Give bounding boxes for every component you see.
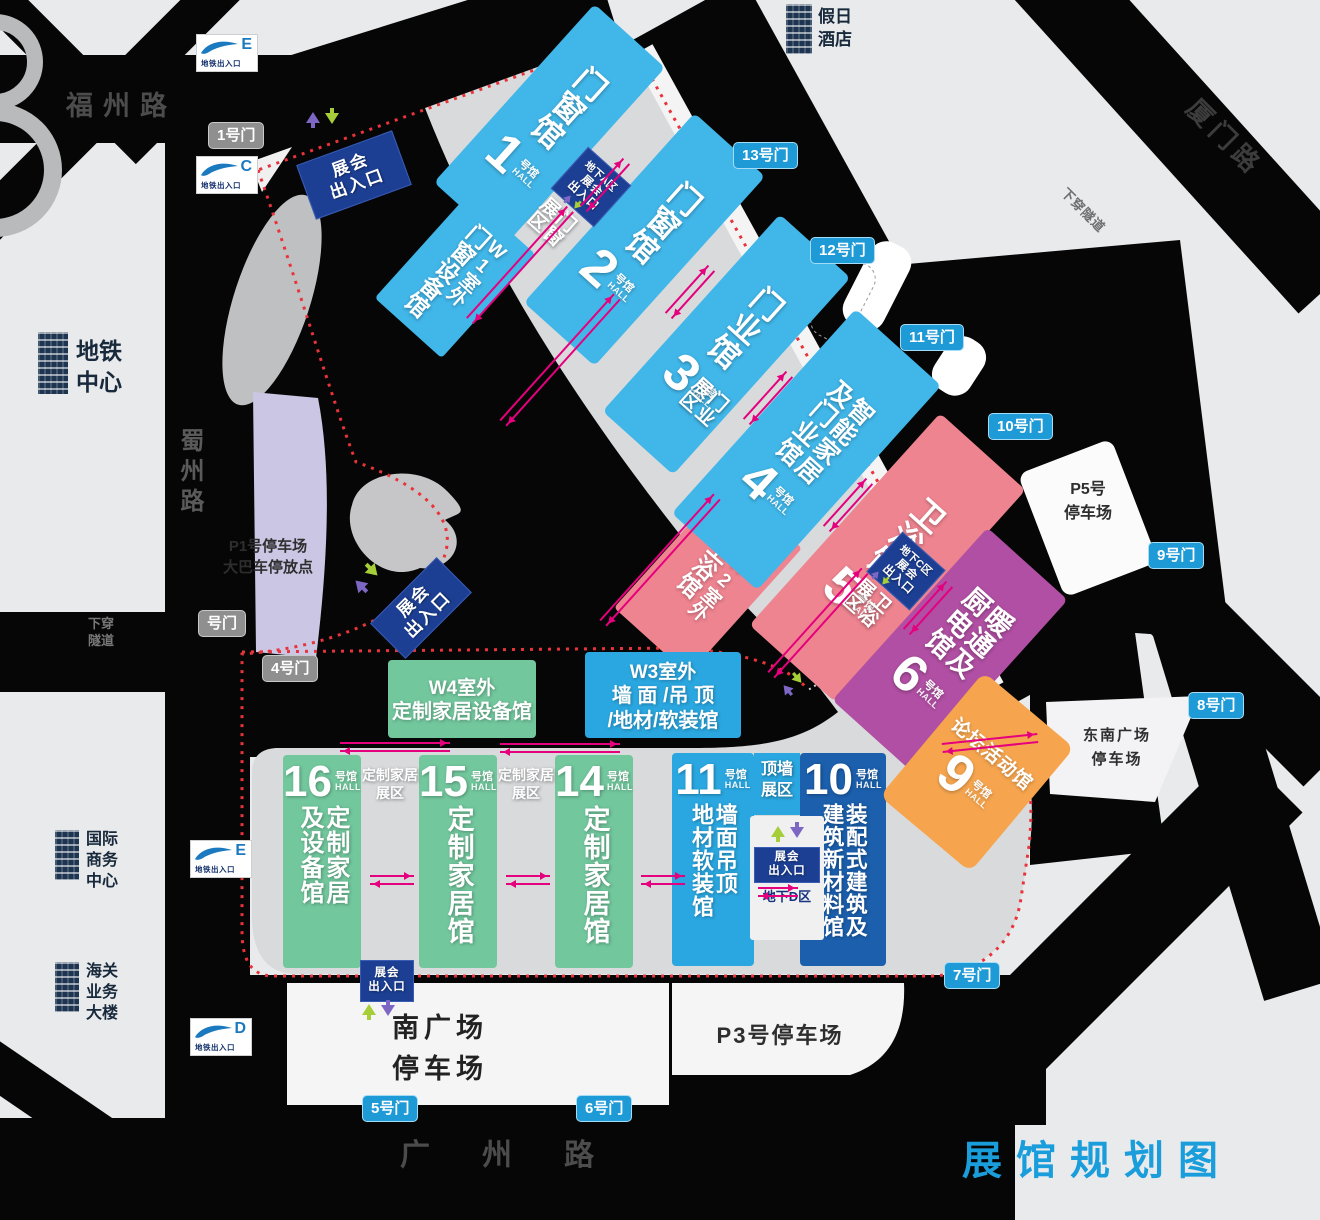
- metro-logo-icon: [200, 38, 240, 56]
- customs-building-icon: [55, 962, 79, 1012]
- gate-13[interactable]: 13号门: [733, 142, 798, 169]
- entrance-arrows: [771, 820, 804, 844]
- p5-parking-label: P5号停车场: [1052, 478, 1124, 526]
- outdoor-hall-w3-line2: /地材/软装馆: [607, 709, 718, 734]
- outdoor-hall-w4-name: 定制家居设备馆: [392, 700, 532, 725]
- metro-exit-c[interactable]: C 地铁出入口: [196, 156, 258, 194]
- map-title: 展馆规划图: [962, 1128, 1232, 1186]
- outdoor-hall-w3-tag: W3室外: [630, 657, 697, 684]
- tunnel-label-west: 下穿隧道: [88, 616, 118, 650]
- outdoor-hall-w4-tag: W4室外: [429, 673, 496, 700]
- gate-6[interactable]: 6号门: [576, 1095, 632, 1122]
- gate-7[interactable]: 7号门: [944, 962, 1000, 989]
- hotel-label: 假日酒店: [818, 6, 858, 52]
- p1-parking-label: P1号停车场大巴车停放点: [218, 536, 318, 578]
- metro-logo-icon: [200, 160, 240, 178]
- north-entrance-arrows: [306, 106, 339, 130]
- p3-parking-label: P3号停车场: [700, 1018, 860, 1050]
- road-shuzhou: 蜀州路: [172, 428, 207, 518]
- metro-center-building-icon: [38, 332, 68, 394]
- down-arrow-icon: [790, 820, 804, 844]
- outdoor-hall-w3[interactable]: W3室外 墙 面 /吊 顶 /地材/软装馆: [585, 652, 741, 738]
- gate-4[interactable]: 4号门: [262, 655, 318, 682]
- entrance-basement-d[interactable]: 展会出入口 地下D区: [750, 816, 824, 940]
- hall-16[interactable]: 16号馆HALL 定制家居及设备馆: [283, 755, 361, 968]
- flow-arrow: [641, 873, 685, 887]
- intl-business-label: 国际商务中心: [86, 830, 122, 892]
- hotel-building-icon: [786, 4, 812, 54]
- gate-1[interactable]: 1号门: [208, 122, 264, 149]
- flow-arrow: [500, 741, 620, 755]
- metro-exit-d[interactable]: D 地铁出入口: [190, 1018, 252, 1056]
- hall-14[interactable]: 14号馆HALL 定制家居馆: [555, 755, 633, 968]
- flow-arrow: [506, 873, 550, 887]
- metro-center-label: 地铁中心: [76, 336, 126, 398]
- exhibition-map: W1室外门窗设备馆 W2室外卫浴馆 W3室外 墙 面 /吊 顶 /地材/软装馆 …: [0, 0, 1320, 1220]
- metro-logo-icon: [194, 844, 234, 862]
- down-arrow-icon: [325, 106, 339, 130]
- metro-exit-e-west[interactable]: E 地铁出入口: [190, 840, 252, 878]
- gate-10[interactable]: 10号门: [988, 413, 1053, 440]
- metro-exit-e-north[interactable]: E 地铁出入口: [196, 34, 258, 72]
- road-fuzhou: 福州路: [66, 84, 177, 123]
- up-arrow-icon: [771, 820, 785, 844]
- metro-logo-icon: [194, 1022, 234, 1040]
- gate-11[interactable]: 11号门: [900, 324, 964, 351]
- road-guangzhou: 广州路: [400, 1130, 646, 1174]
- gate-12[interactable]: 12号门: [810, 237, 875, 264]
- se-square-parking-label: 东南广场停车场: [1072, 724, 1162, 772]
- zone-custom-home-1: 定制家居展区: [361, 766, 419, 802]
- gate-5[interactable]: 5号门: [362, 1095, 418, 1122]
- hall-11[interactable]: 11号馆HALL 墙面吊顶地材软装馆: [672, 753, 754, 966]
- gate-8[interactable]: 8号门: [1188, 692, 1244, 719]
- south-square-parking-label: 南广场停车场: [360, 1008, 520, 1089]
- flow-arrow: [758, 885, 798, 899]
- up-arrow-icon: [306, 106, 320, 130]
- intl-business-building-icon: [55, 830, 79, 880]
- hall-15[interactable]: 15号馆HALL 定制家居馆: [419, 755, 497, 968]
- p1-parking-area[interactable]: [253, 392, 327, 658]
- outdoor-hall-w4[interactable]: W4室外 定制家居设备馆: [388, 660, 536, 738]
- flow-arrow: [340, 740, 450, 754]
- outdoor-hall-w3-line1: 墙 面 /吊 顶: [612, 684, 714, 709]
- zone-ceiling-wall: 顶墙展区: [757, 760, 797, 802]
- entrance-south[interactable]: 展会出入口: [360, 960, 414, 1002]
- customs-label: 海关业务大楼: [86, 962, 122, 1024]
- flow-arrow: [370, 873, 414, 887]
- gate-9[interactable]: 9号门: [1148, 542, 1204, 569]
- zone-custom-home-2: 定制家居展区: [497, 766, 555, 802]
- gate-unnumbered[interactable]: 号门: [198, 610, 246, 637]
